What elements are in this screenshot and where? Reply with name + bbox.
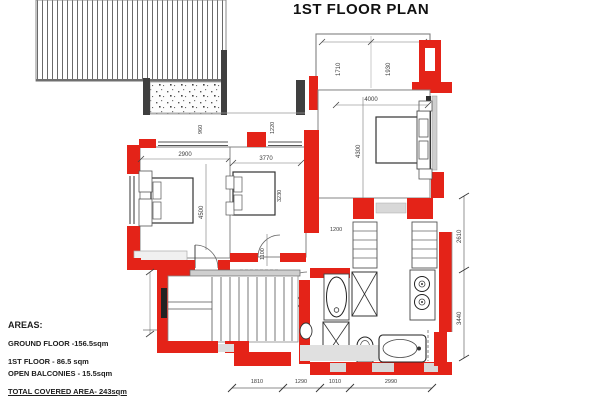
area-first-floor: 1ST FLOOR - 86.5 sqm xyxy=(8,357,178,366)
dim-right-upper: 2610 xyxy=(457,229,463,243)
dim-right-lower: 3440 xyxy=(457,311,463,325)
area-ground-floor: GROUND FLOOR -156.5sqm xyxy=(8,339,178,348)
dim-bottom-4: 2990 xyxy=(385,379,397,385)
linen-shelf-1 xyxy=(353,222,377,268)
dim-master-height: 4300 xyxy=(356,144,362,158)
bed-2 xyxy=(226,172,275,215)
areas-schedule: AREAS: GROUND FLOOR -156.5sqm 1ST FLOOR … xyxy=(8,320,178,396)
dim-bedroom1-width: 2900 xyxy=(178,152,192,158)
central-red-wall xyxy=(304,130,319,233)
dim-bedroom2-width: 3770 xyxy=(259,156,273,162)
dim-master-width: 4000 xyxy=(364,97,378,103)
linen-shelf-2 xyxy=(412,222,437,268)
bedroom-1: 2900 4500 xyxy=(127,139,232,270)
dim-bottom-3: 1010 xyxy=(329,379,341,385)
toilet-2 xyxy=(300,323,312,339)
dim-terrace-right: 1930 xyxy=(386,62,392,76)
dim-hall-width: 1200 xyxy=(330,227,342,233)
pergola-roof xyxy=(36,0,226,82)
bedroom-2: 3770 3230 xyxy=(226,130,319,262)
dim-offset-mid: 1220 xyxy=(270,122,276,134)
master-bedroom: 4000 4300 xyxy=(318,90,444,219)
dim-bottom-2: 1290 xyxy=(295,379,307,385)
bathtub xyxy=(379,335,426,362)
dim-offset-left: 960 xyxy=(198,125,204,134)
dim-terrace-left: 1710 xyxy=(336,62,342,76)
dim-bedroom2-height: 3230 xyxy=(277,190,283,202)
vanity xyxy=(410,270,435,320)
area-open-balconies: OPEN BALCONIES - 15.5sqm xyxy=(8,369,178,378)
dim-bedroom1-height: 4500 xyxy=(199,205,205,219)
areas-heading: AREAS: xyxy=(8,320,178,330)
right-dimension-chain: 2610 3440 xyxy=(457,193,469,361)
dim-bottom-1: 1810 xyxy=(251,379,263,385)
bottom-dimension-chain: 1810 1290 1010 2990 xyxy=(228,379,436,392)
duct-shaft-1 xyxy=(352,272,377,316)
shower xyxy=(324,274,349,320)
floor-plan-page: 1ST FLOOR PLAN xyxy=(0,0,600,400)
area-total: TOTAL COVERED AREA- 243sqm xyxy=(8,387,178,396)
dim-corridor-width: 1100 xyxy=(260,248,266,260)
